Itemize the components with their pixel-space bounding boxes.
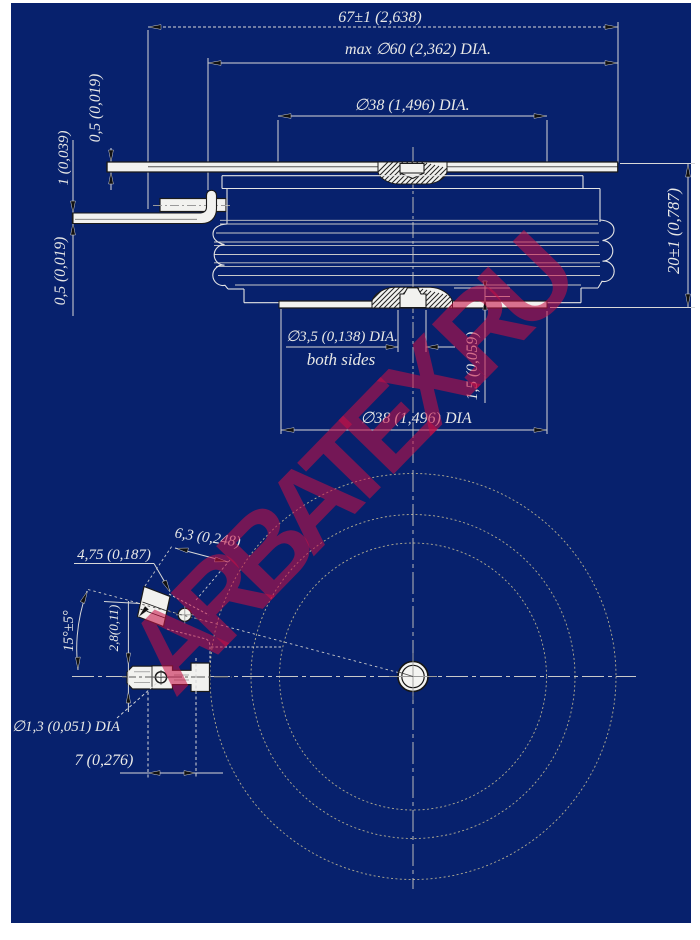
svg-text:67±1 (2,638): 67±1 (2,638)	[338, 9, 421, 26]
svg-text:15°±5°: 15°±5°	[61, 610, 77, 652]
svg-text:7 (0,276): 7 (0,276)	[75, 752, 134, 769]
svg-text:1 (0,039): 1 (0,039)	[56, 131, 72, 186]
svg-text:4,75 (0,187): 4,75 (0,187)	[77, 547, 151, 563]
svg-text:0,5 (0,019): 0,5 (0,019)	[87, 74, 104, 142]
svg-text:∅1,3 (0,051) DIA: ∅1,3 (0,051) DIA	[12, 719, 121, 735]
svg-text:∅38 (1,496) DIA.: ∅38 (1,496) DIA.	[354, 97, 469, 114]
svg-text:0,5 (0,019): 0,5 (0,019)	[52, 237, 69, 305]
svg-text:max ∅60 (2,362) DIA.: max ∅60 (2,362) DIA.	[345, 41, 491, 58]
svg-text:20±1 (0,787): 20±1 (0,787)	[664, 188, 683, 274]
